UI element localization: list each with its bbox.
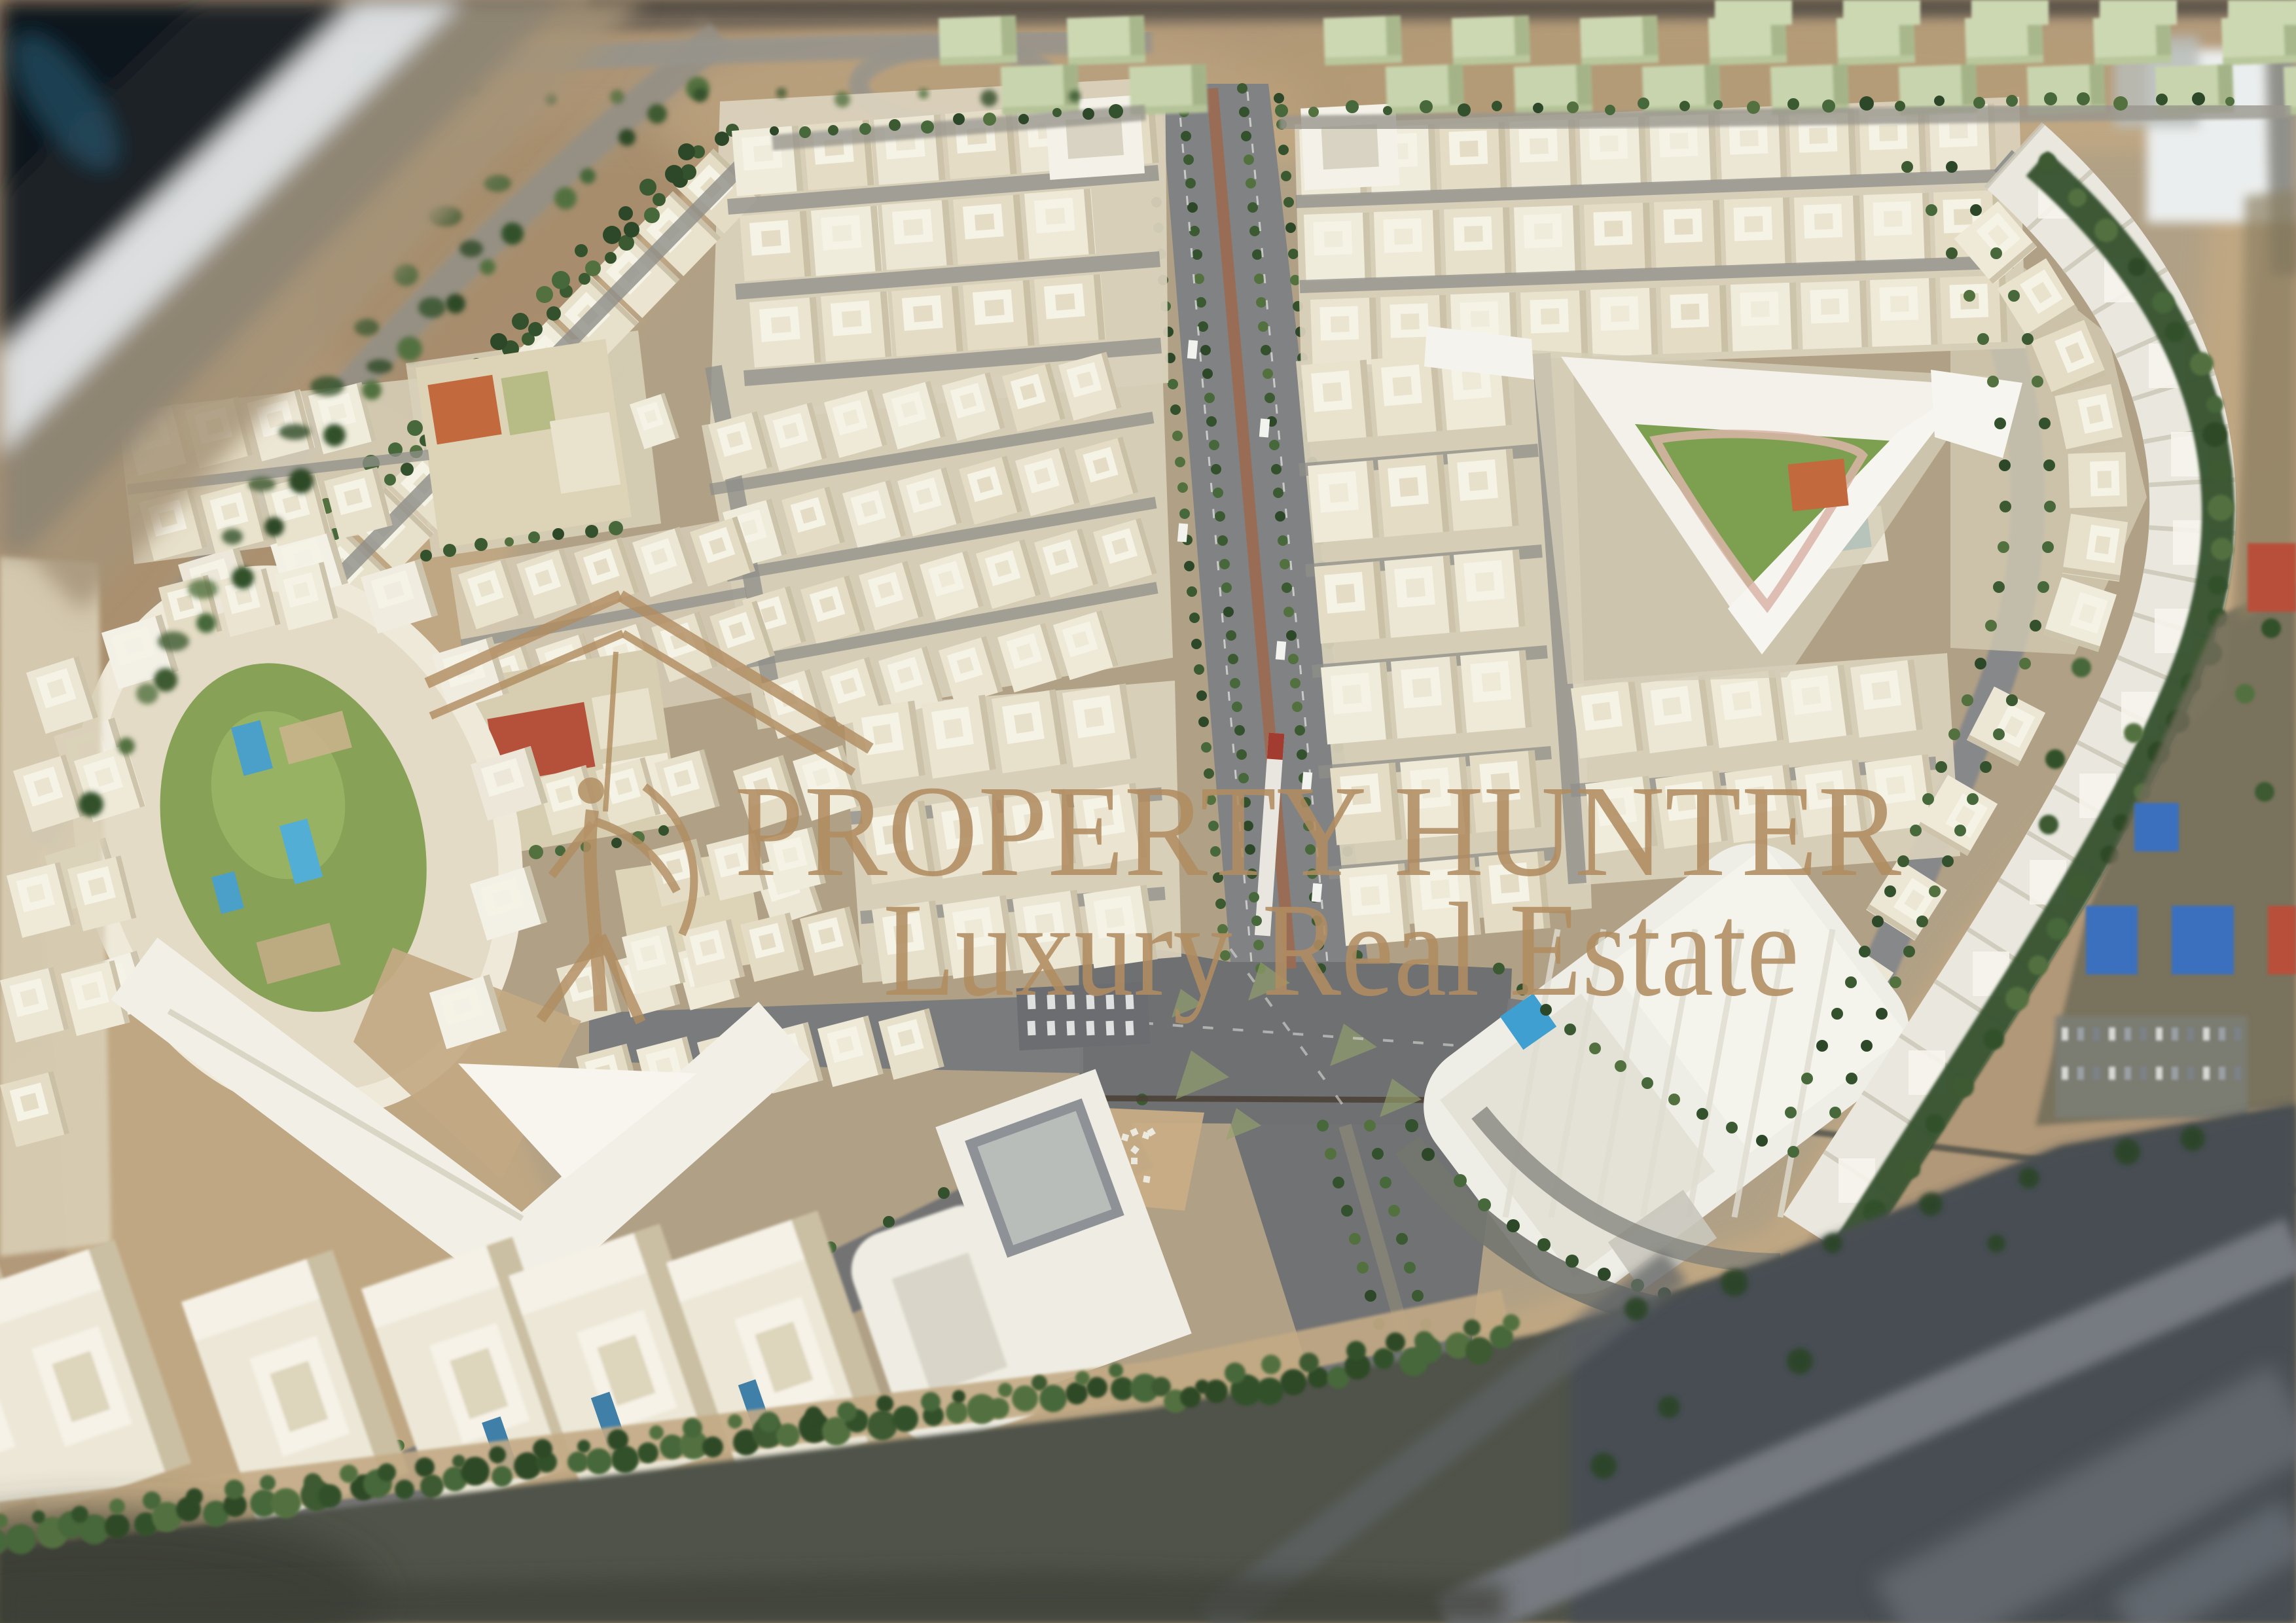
svg-text:Luxury Real Estate: Luxury Real Estate [883,876,1799,1024]
